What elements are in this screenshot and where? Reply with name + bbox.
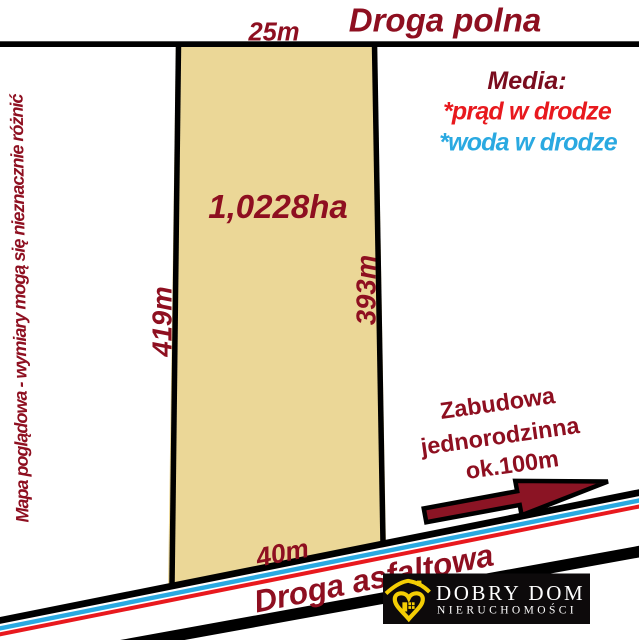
svg-text:25m: 25m (247, 18, 299, 46)
svg-text:419m: 419m (147, 286, 178, 357)
svg-text:Droga polna: Droga polna (349, 2, 542, 39)
svg-text:*woda w drodze: *woda w drodze (439, 129, 618, 157)
svg-text:NIERUCHOMOŚCI: NIERUCHOMOŚCI (437, 603, 577, 617)
svg-text:*prąd w drodze: *prąd w drodze (443, 98, 612, 126)
svg-text:1,0228ha: 1,0228ha (208, 188, 347, 225)
svg-text:DOBRY DOM: DOBRY DOM (436, 581, 585, 605)
svg-text:393m: 393m (351, 255, 382, 325)
svg-text:Media:: Media: (487, 67, 566, 95)
